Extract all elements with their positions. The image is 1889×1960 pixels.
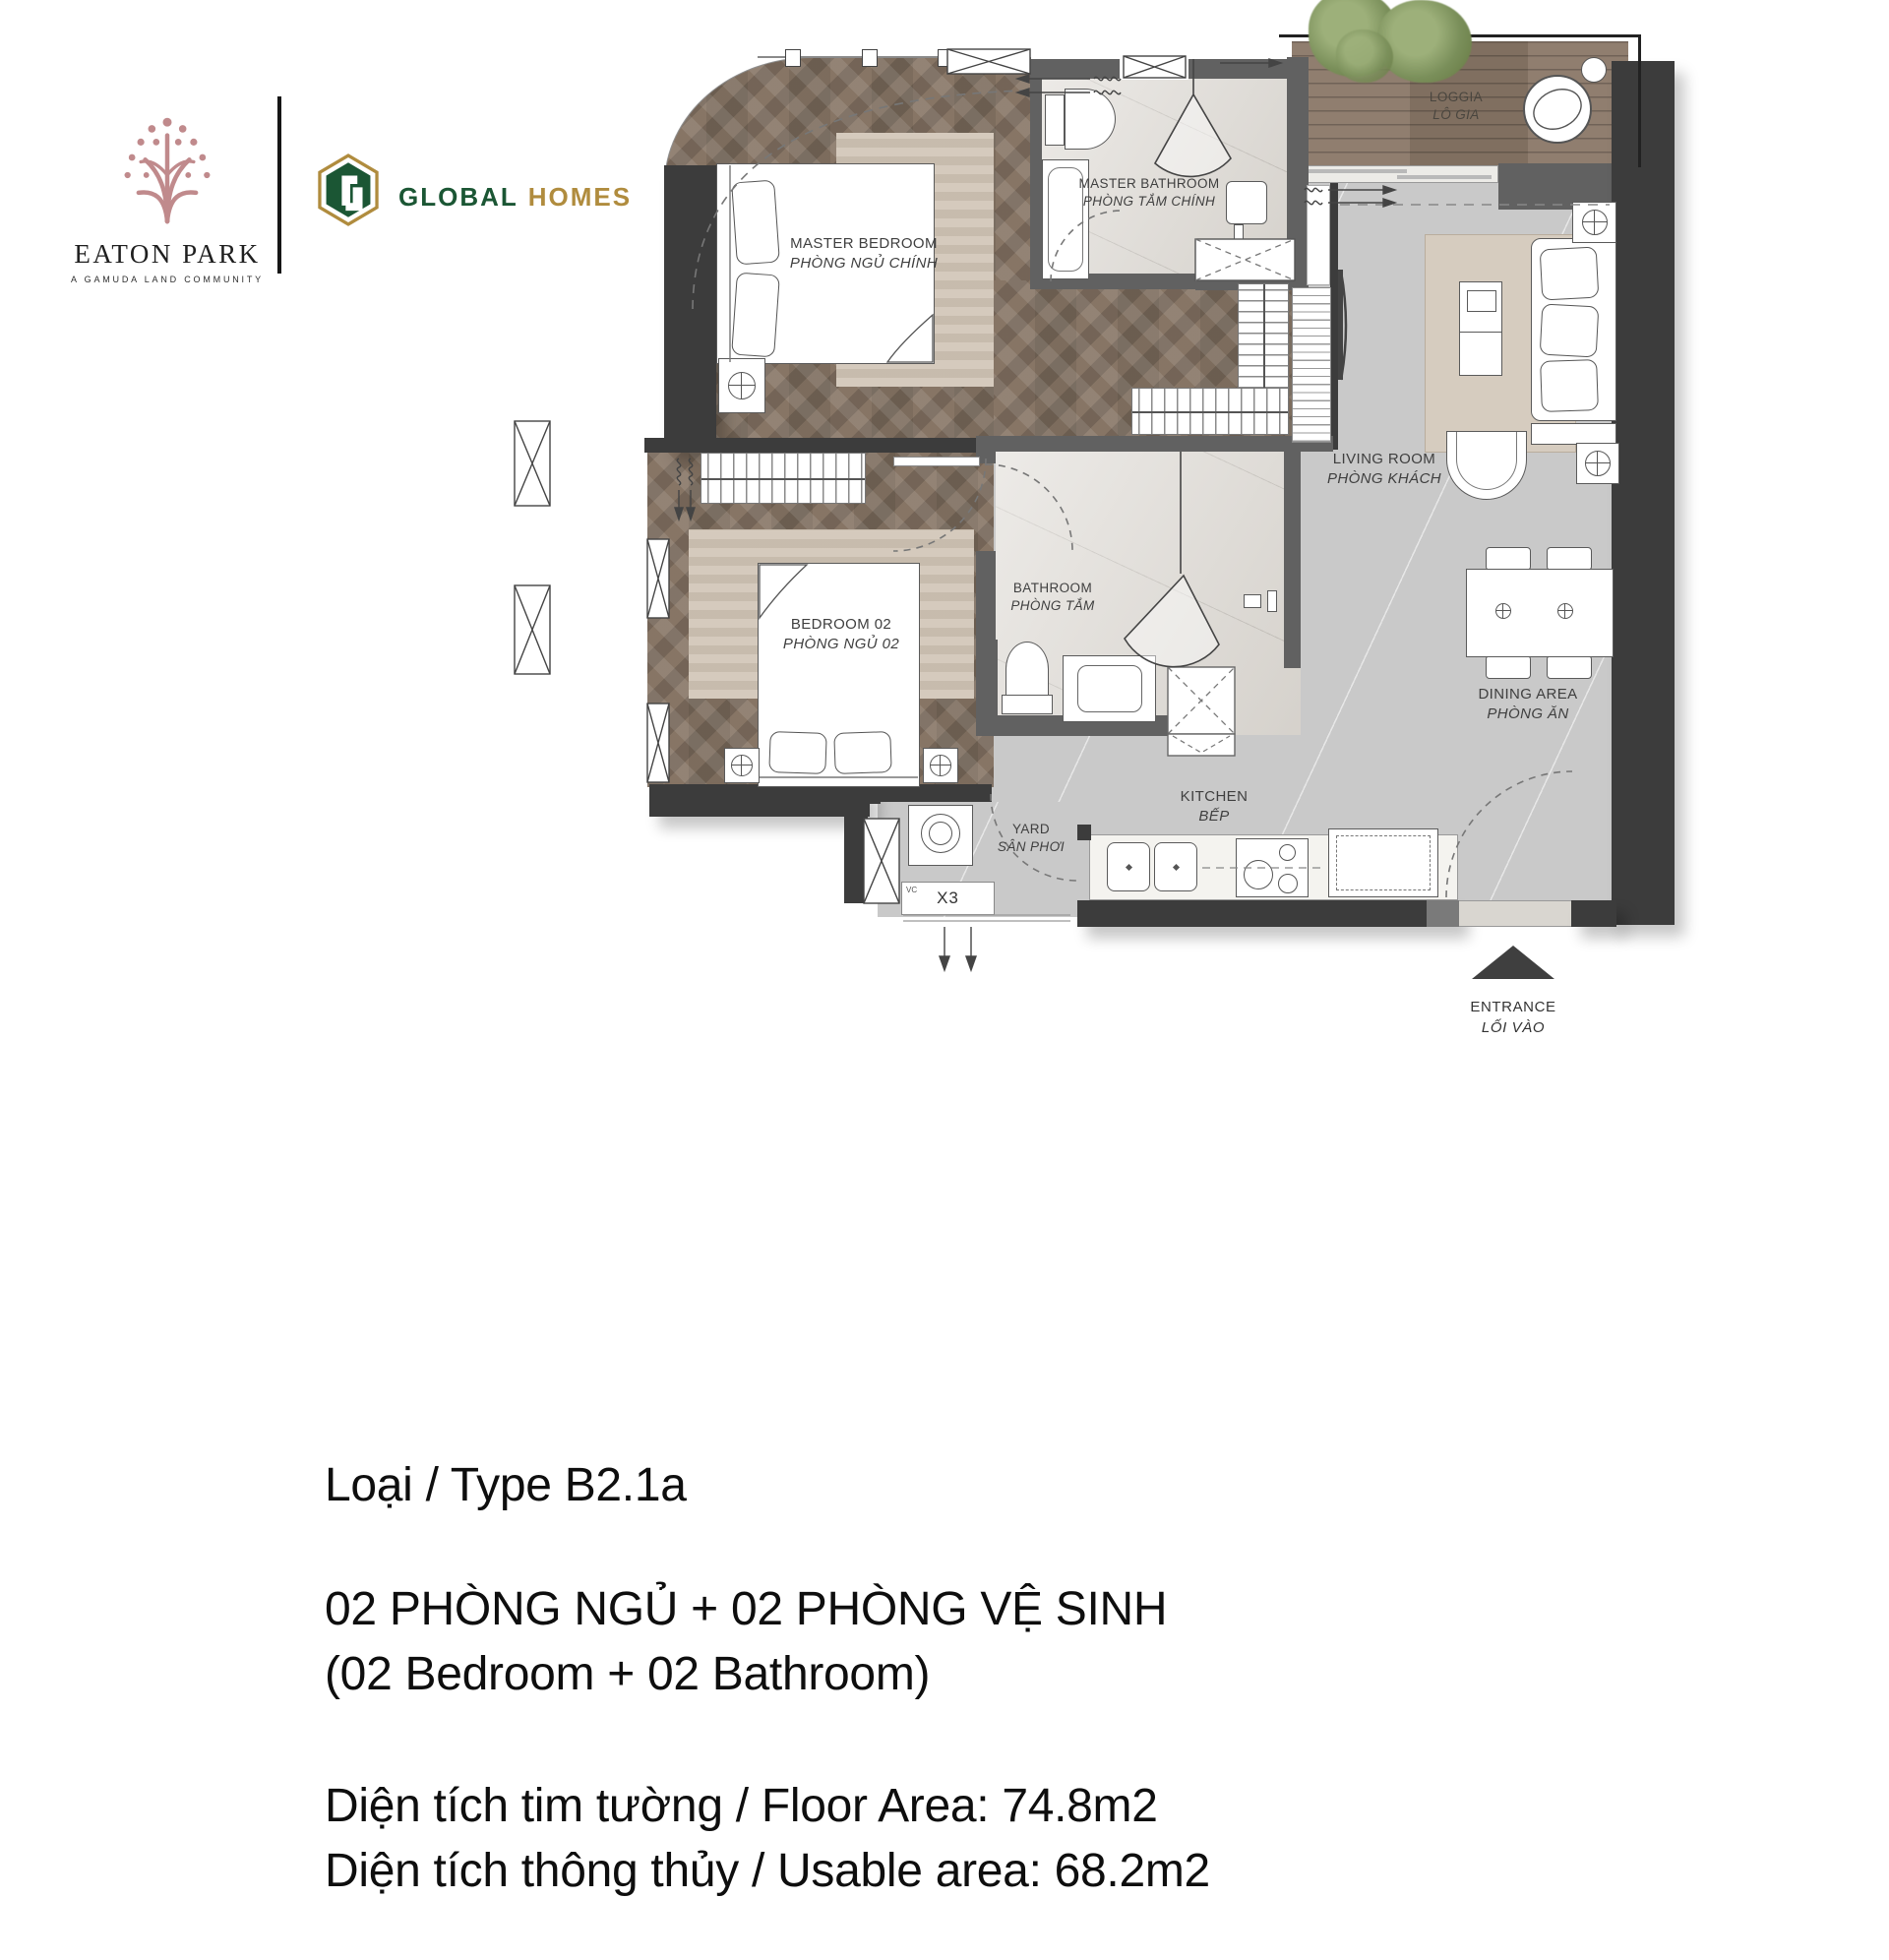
room-label-bathroom: BATHROOM PHÒNG TẮM bbox=[1010, 580, 1094, 615]
label-en: YARD bbox=[998, 821, 1065, 838]
room-label-dining-area: DINING AREA PHÒNG ĂN bbox=[1478, 685, 1577, 724]
label-vi: PHÒNG TẮM bbox=[1010, 597, 1094, 615]
label-en: BEDROOM 02 bbox=[783, 615, 899, 635]
room-label-kitchen: KITCHEN BẾP bbox=[1181, 787, 1249, 827]
room-label-bedroom-02: BEDROOM 02 PHÒNG NGỦ 02 bbox=[783, 615, 899, 654]
label-en: DINING AREA bbox=[1478, 685, 1577, 704]
label-vi: SÂN PHƠI bbox=[998, 838, 1065, 856]
entrance-en: ENTRANCE bbox=[1470, 999, 1555, 1015]
shower-icon bbox=[1125, 452, 1219, 667]
room-label-loggia: LOGGIA LÔ GIA bbox=[1430, 89, 1483, 124]
tv-icon bbox=[1341, 272, 1346, 380]
label-vi: PHÒNG ĂN bbox=[1478, 704, 1577, 724]
usable-area-line: Diện tích thông thủy / Usable area: 68.2… bbox=[325, 1844, 1210, 1898]
floor-area-line: Diện tích tim tường / Floor Area: 74.8m2 bbox=[325, 1779, 1158, 1833]
room-label-yard: YARD SÂN PHƠI bbox=[998, 821, 1065, 856]
yard-threshold-lines bbox=[903, 915, 1070, 921]
label-vi: PHÒNG KHÁCH bbox=[1327, 469, 1441, 489]
label-vi: PHÒNG TẮM CHÍNH bbox=[1078, 193, 1219, 211]
label-en: BATHROOM bbox=[1010, 580, 1094, 597]
label-en: LOGGIA bbox=[1430, 89, 1483, 106]
plan-linework bbox=[0, 0, 1889, 1102]
room-label-master-bathroom: MASTER BATHROOM PHÒNG TẮM CHÍNH bbox=[1078, 175, 1219, 211]
room-label-living-room: LIVING ROOM PHÒNG KHÁCH bbox=[1327, 450, 1441, 489]
room-label-master-bedroom: MASTER BEDROOM PHÒNG NGỦ CHÍNH bbox=[790, 234, 938, 274]
label-vi: BẾP bbox=[1181, 807, 1249, 827]
label-vi: PHÒNG NGỦ 02 bbox=[783, 635, 899, 654]
label-en: LIVING ROOM bbox=[1327, 450, 1441, 469]
balcony-dashed-line bbox=[693, 91, 1025, 309]
entrance-label: ENTRANCE LỐI VÀO bbox=[1470, 997, 1555, 1038]
bedrooms-line-en: (02 Bedroom + 02 Bathroom) bbox=[325, 1647, 930, 1701]
basin-inner bbox=[1527, 82, 1587, 137]
label-en: KITCHEN bbox=[1181, 787, 1249, 807]
blanket-fold bbox=[887, 315, 933, 362]
blanket-fold bbox=[760, 565, 807, 618]
floor-plan-flyer: EATON PARK A GAMUDA LAND COMMUNITY GLOBA… bbox=[0, 0, 1889, 1960]
label-vi: LÔ GIA bbox=[1430, 106, 1483, 124]
label-en: MASTER BEDROOM bbox=[790, 234, 938, 254]
label-en: MASTER BATHROOM bbox=[1078, 175, 1219, 193]
entrance-vi: LỐI VÀO bbox=[1482, 1019, 1545, 1036]
pantry-icon bbox=[1168, 667, 1235, 756]
closet-icon bbox=[1195, 239, 1295, 280]
label-vi: PHÒNG NGỦ CHÍNH bbox=[790, 254, 938, 274]
bedrooms-line-vi: 02 PHÒNG NGỦ + 02 PHÒNG VỆ SINH bbox=[325, 1582, 1167, 1636]
type-line: Loại / Type B2.1a bbox=[325, 1458, 687, 1512]
